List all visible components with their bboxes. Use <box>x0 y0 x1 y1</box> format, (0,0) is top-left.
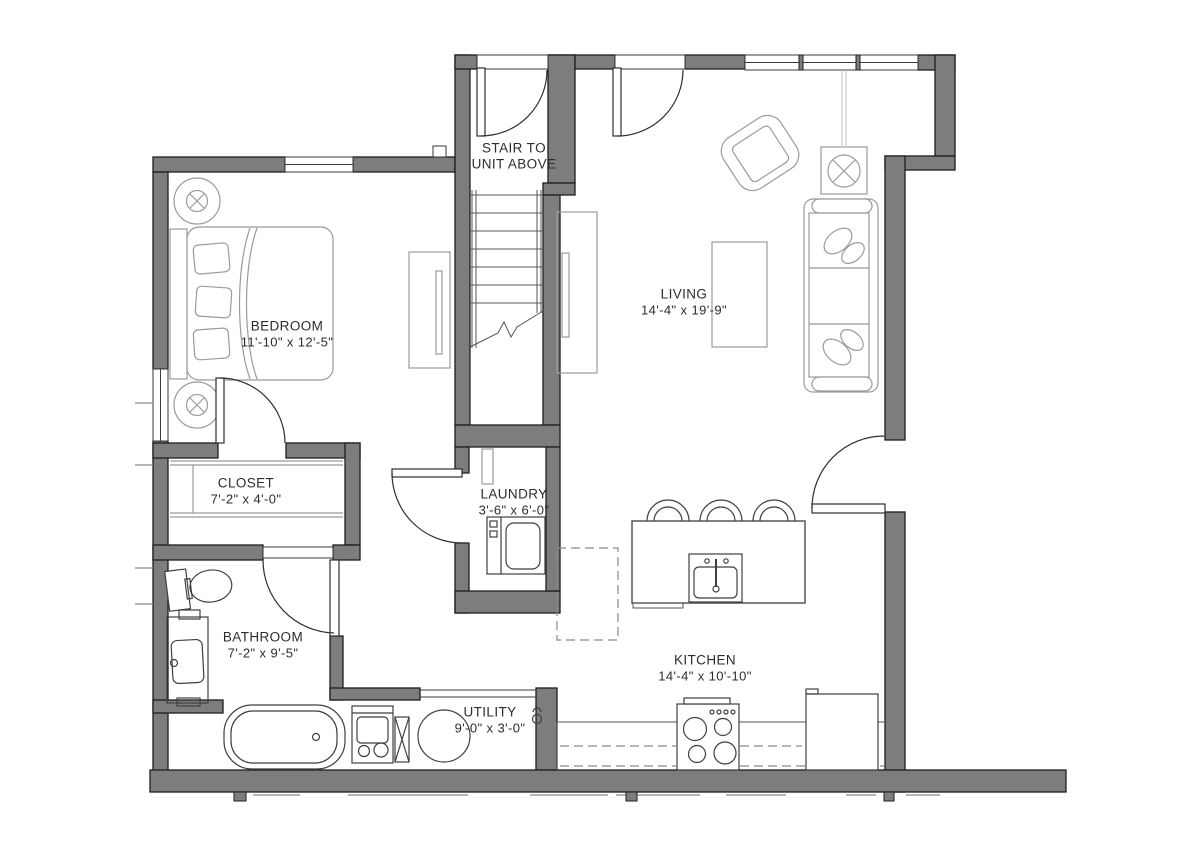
room-name: LIVING <box>641 287 727 303</box>
floor-plan: STAIR TO UNIT ABOVE BEDROOM 11'-10" x 12… <box>0 0 1200 842</box>
stair-break-line <box>470 311 543 347</box>
bar-stools <box>647 500 795 521</box>
stair-entry-door <box>477 68 547 136</box>
room-dimensions: 14'-4" x 19'-9" <box>641 302 727 318</box>
floor-plan-drawing <box>0 0 1200 842</box>
bedroom-window-left <box>153 369 168 441</box>
room-name: CLOSET <box>211 476 282 492</box>
room-dimensions: 9'-0" x 3'-0" <box>455 720 526 736</box>
stair-entry-opening <box>477 55 548 69</box>
bed <box>170 227 333 380</box>
bathroom-door-opening <box>263 547 333 558</box>
bedroom-window-top <box>285 157 353 172</box>
washer-dryer <box>352 706 393 763</box>
side-table-with-lamp <box>821 147 867 194</box>
stacked-washer-dryer <box>487 517 545 574</box>
room-label-closet: CLOSET 7'-2" x 4'-0" <box>211 476 282 507</box>
pillow <box>193 242 230 274</box>
plumbing-chase <box>482 449 493 484</box>
utility-chase <box>395 717 409 762</box>
pillow <box>193 328 230 360</box>
living-window-band <box>745 55 918 70</box>
pantry-dashed-box <box>557 548 618 640</box>
bathroom-vanity <box>167 610 208 706</box>
room-dimensions: 7'-2" x 4'-0" <box>211 491 282 507</box>
room-dimensions: 14'-4" x 10'-10" <box>658 668 752 684</box>
refrigerator <box>806 689 878 770</box>
room-label-bedroom: BEDROOM 11'-10" x 12'-5" <box>241 319 334 350</box>
pillow <box>195 286 232 318</box>
sofa <box>804 199 878 392</box>
room-dimensions: 3'-6" x 6'-0" <box>479 502 550 518</box>
kitchen-fixtures <box>557 500 886 770</box>
laundry-door <box>392 469 462 543</box>
media-console <box>557 212 597 373</box>
room-label-utility: UTILITY 9'-0" x 3'-0" <box>455 705 526 736</box>
armchair <box>715 109 805 196</box>
nightstand-with-lamp <box>174 178 220 224</box>
room-name: KITCHEN <box>658 653 752 669</box>
bathroom-door <box>263 560 339 636</box>
living-entry-door <box>613 68 683 136</box>
stairs <box>470 190 543 348</box>
living-side-door <box>812 436 885 513</box>
room-label-laundry: LAUNDRY 3'-6" x 6'-0" <box>479 487 550 518</box>
room-name: STAIR TO UNIT ABOVE <box>464 141 564 172</box>
room-dimensions: 11'-10" x 12'-5" <box>241 334 334 350</box>
room-name: LAUNDRY <box>479 487 550 503</box>
room-name: BEDROOM <box>241 319 334 335</box>
room-label-kitchen: KITCHEN 14'-4" x 10'-10" <box>658 653 752 684</box>
room-dimensions: 7'-2" x 9'-5" <box>223 645 303 661</box>
nightstand-with-lamp <box>174 382 220 428</box>
range-stove <box>677 698 739 770</box>
bathtub <box>224 705 345 769</box>
bedroom-door <box>216 378 285 443</box>
column-marker <box>433 146 446 157</box>
living-furniture <box>557 70 878 392</box>
toilet <box>165 564 234 612</box>
bathroom-fixtures <box>165 564 345 769</box>
room-label-bathroom: BATHROOM 7'-2" x 9'-5" <box>223 630 303 661</box>
room-label-living: LIVING 14'-4" x 19'-9" <box>641 287 727 318</box>
room-name: UTILITY <box>455 705 526 721</box>
kitchen-island <box>632 521 805 608</box>
room-label-stair: STAIR TO UNIT ABOVE <box>464 141 564 172</box>
dresser <box>409 252 450 368</box>
room-name: BATHROOM <box>223 630 303 646</box>
bedroom-furniture <box>170 178 450 428</box>
living-entry-opening <box>615 55 685 69</box>
